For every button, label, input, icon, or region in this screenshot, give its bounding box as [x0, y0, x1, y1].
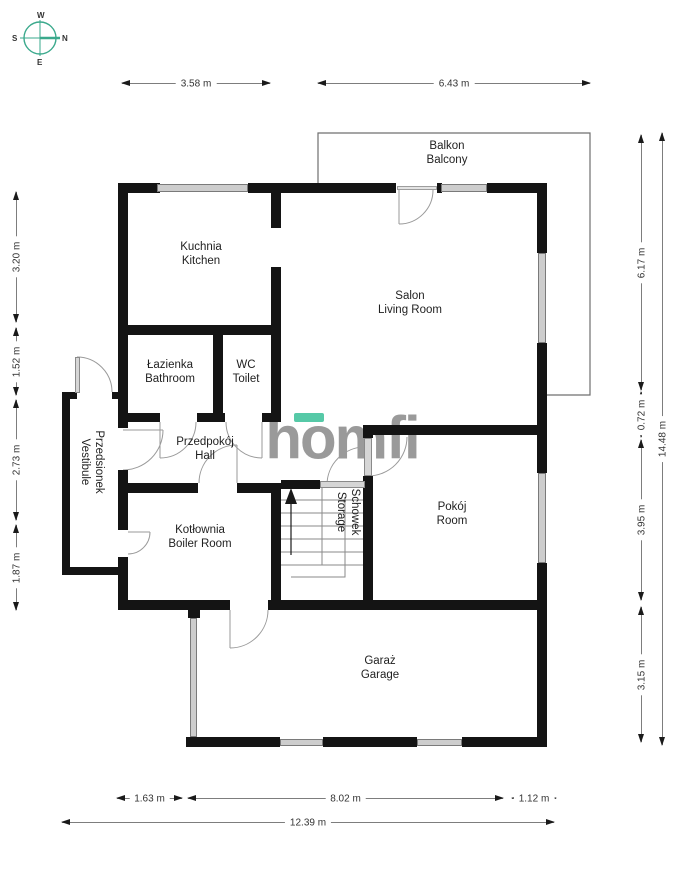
- wall-segment: [323, 737, 417, 747]
- room-label-hall: Przedpokój Hall: [176, 435, 234, 463]
- room-name-pl: Kotłownia: [168, 523, 231, 537]
- balcony-outline: [318, 133, 590, 395]
- wall-segment: [271, 183, 281, 228]
- room-door-arc: [368, 437, 407, 476]
- room-name-pl: Salon: [378, 289, 442, 303]
- compass-label-e: E: [37, 58, 43, 66]
- wall-segment: [462, 737, 547, 747]
- room-name-en: Vestibule: [78, 430, 92, 493]
- entry-door-arc: [77, 357, 112, 392]
- window: [280, 739, 323, 746]
- wall-segment: [118, 325, 281, 335]
- wall-segment: [112, 392, 118, 399]
- wall-segment: [262, 413, 281, 422]
- room-name-pl: Pokój: [437, 500, 468, 514]
- room-name-pl: Przedpokój: [176, 435, 234, 449]
- room-label-living-room: Salon Living Room: [378, 289, 442, 317]
- room-label-balcony: Balkon Balcony: [427, 139, 468, 167]
- wall-segment: [363, 425, 547, 435]
- room-name-pl: Garaż: [361, 654, 399, 668]
- wall-segment: [62, 392, 77, 399]
- wall-segment: [363, 476, 373, 610]
- floorplan-canvas: W N S E homfi: [0, 0, 679, 878]
- window: [538, 473, 546, 563]
- window: [417, 739, 462, 746]
- room-name-en: Balcony: [427, 153, 468, 167]
- room-label-storage: Schowek Storage: [334, 489, 362, 536]
- vestibule-boiler-door-arc: [128, 532, 150, 554]
- room-label-kitchen: Kuchnia Kitchen: [180, 240, 222, 268]
- wall-segment: [118, 600, 230, 610]
- wall-segment: [186, 737, 280, 747]
- wall-segment: [271, 267, 281, 422]
- room-label-garage: Garaż Garage: [361, 654, 399, 682]
- room-name-pl: WC: [233, 358, 260, 372]
- room-label-vestibule: Przedsionek Vestibule: [78, 430, 106, 493]
- room-name-en: Boiler Room: [168, 537, 231, 551]
- window: [190, 618, 197, 737]
- room-name-en: Toilet: [233, 372, 260, 386]
- wall-segment: [118, 413, 160, 422]
- garage-door-arc: [230, 610, 268, 648]
- window: [538, 253, 546, 343]
- wall-segment: [62, 392, 70, 575]
- room-label-boiler-room: Kotłownia Boiler Room: [168, 523, 231, 551]
- window: [441, 184, 487, 192]
- room-name-pl: Schowek: [348, 489, 362, 536]
- room-name-en: Living Room: [378, 303, 442, 317]
- balcony-door-rail: [397, 186, 437, 190]
- compass-label-n: N: [62, 34, 68, 43]
- room-name-pl: Przedsionek: [92, 430, 106, 493]
- room-name-pl: Łazienka: [145, 358, 195, 372]
- room-door-leaf: [364, 438, 372, 476]
- wall-segment: [118, 183, 128, 428]
- wall-segment: [197, 413, 225, 422]
- balcony-door-arc: [399, 190, 433, 224]
- room-name-en: Garage: [361, 668, 399, 682]
- compass-label-s: S: [12, 34, 18, 43]
- room-name-en: Hall: [176, 449, 234, 463]
- wall-segment: [213, 335, 223, 413]
- wall-segment: [281, 480, 320, 489]
- storage-door-leaf: [320, 481, 365, 488]
- entry-door-leaf: [75, 357, 80, 393]
- wall-segment: [118, 470, 128, 530]
- wall-segment: [118, 483, 198, 493]
- stair-direction-arrow-head: [285, 488, 297, 504]
- room-name-pl: Balkon: [427, 139, 468, 153]
- room-name-en: Bathroom: [145, 372, 195, 386]
- room-name-en: Kitchen: [180, 254, 222, 268]
- compass-label-w: W: [37, 11, 45, 20]
- wall-segment: [268, 600, 547, 610]
- room-label-room: Pokój Room: [437, 500, 468, 528]
- wall-segment: [537, 183, 547, 253]
- room-label-wc: WC Toilet: [233, 358, 260, 386]
- storage-door-arc: [327, 447, 365, 485]
- window: [157, 184, 248, 192]
- wall-segment: [271, 483, 281, 610]
- room-name-pl: Kuchnia: [180, 240, 222, 254]
- room-name-en: Room: [437, 514, 468, 528]
- room-label-bathroom: Łazienka Bathroom: [145, 358, 195, 386]
- vestibule-hall-door-arc: [123, 430, 163, 470]
- room-name-en: Storage: [334, 489, 348, 536]
- wall-segment: [62, 567, 118, 575]
- wall-segment: [188, 610, 200, 618]
- wall-segment: [537, 563, 547, 747]
- wall-segment: [537, 343, 547, 473]
- compass-rose: W N S E: [12, 10, 68, 66]
